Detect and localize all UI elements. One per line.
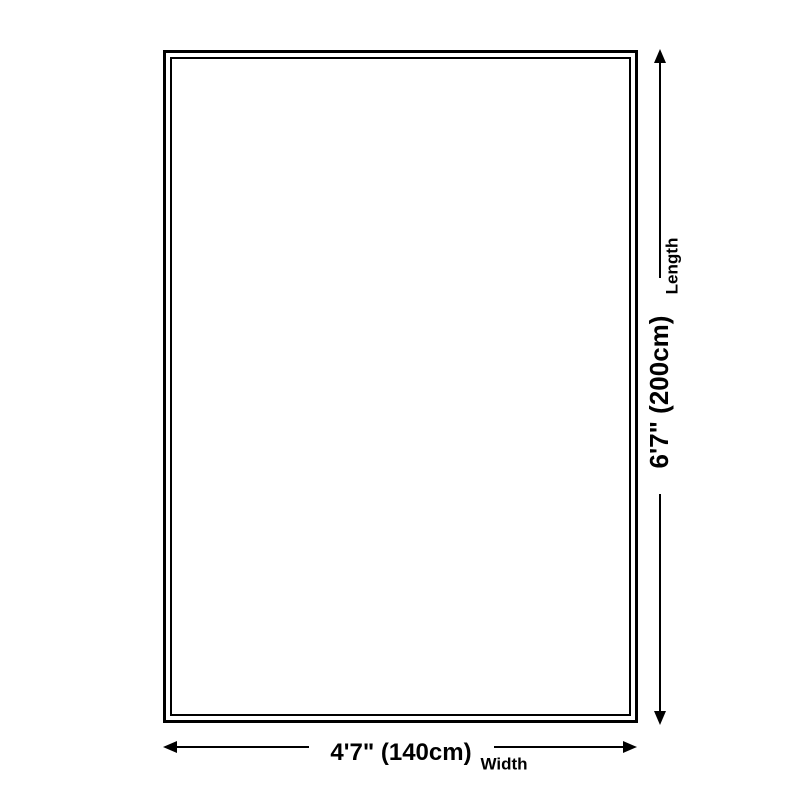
arrow-left-icon: [163, 741, 177, 753]
arrow-up-icon: [654, 49, 666, 63]
width-arrow-line-right: [494, 746, 623, 748]
length-arrow-line-top: [659, 62, 661, 278]
product-outline-outer: [163, 50, 638, 723]
length-dimension-text: 6'7" (200cm): [646, 316, 672, 469]
product-outline-inner: [170, 57, 631, 716]
width-caption: Width: [480, 756, 527, 773]
arrow-down-icon: [654, 711, 666, 725]
width-arrow-line-left: [176, 746, 309, 748]
dimension-diagram: Length 6'7" (200cm) 4'7" (140cm) Width: [0, 0, 800, 800]
length-caption: Length: [664, 238, 681, 295]
length-arrow-line-bottom: [659, 494, 661, 711]
width-dimension-text: 4'7" (140cm): [330, 741, 471, 765]
arrow-right-icon: [623, 741, 637, 753]
